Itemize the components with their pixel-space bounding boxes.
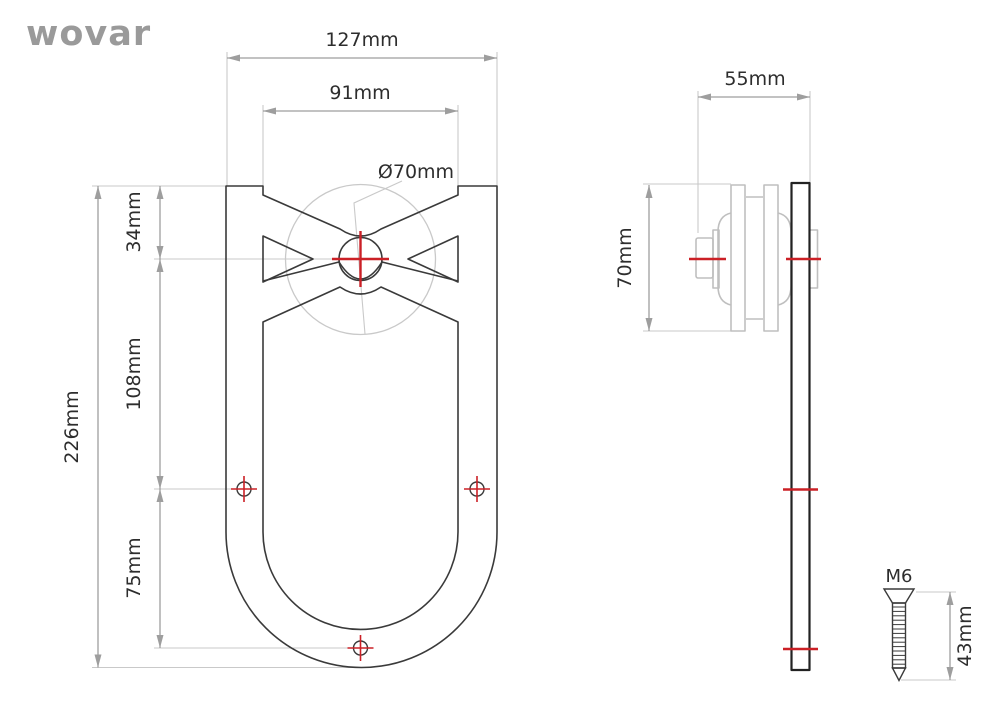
front-view: 127mm 91mm Ø70mm 226mm 34mm 108mm 75mm	[61, 29, 497, 668]
dim-label-depth: 55mm	[724, 68, 785, 90]
strap-side-profile	[792, 183, 810, 670]
dim-label-wheel-diameter: Ø70mm	[378, 161, 454, 183]
technical-drawing-canvas: 127mm 91mm Ø70mm 226mm 34mm 108mm 75mm	[0, 0, 1000, 706]
extension-lines-front	[92, 52, 497, 668]
dim-label-notch-width: 91mm	[329, 82, 390, 104]
extension-lines-side	[643, 91, 810, 331]
center-marks-side	[689, 259, 821, 649]
screw-tip	[893, 668, 906, 681]
side-view: 55mm 70mm	[614, 68, 821, 670]
screw-threads	[893, 607, 906, 664]
screw-shank	[893, 603, 906, 668]
screw-drawing	[884, 589, 914, 681]
screw-head	[884, 589, 914, 603]
screw-thread-label: M6	[886, 566, 913, 587]
dim-label-top-to-axle: 34mm	[123, 191, 145, 252]
dim-label-holes-to-bottom: 75mm	[123, 537, 145, 598]
drawing-page: wovar	[0, 0, 1000, 706]
dim-label-width: 127mm	[325, 29, 398, 51]
extension-lines-screw	[901, 592, 956, 680]
dim-label-wheel-height: 70mm	[614, 227, 636, 288]
dim-label-screw-length: 43mm	[954, 605, 976, 666]
center-marks-front	[231, 231, 490, 661]
screw-detail: M6 43mm	[884, 566, 976, 681]
dim-label-total-height: 226mm	[61, 390, 83, 463]
dimension-lines-front	[98, 58, 497, 668]
dim-label-axle-to-holes: 108mm	[123, 337, 145, 410]
hanger-inner-cutout	[263, 287, 458, 629]
